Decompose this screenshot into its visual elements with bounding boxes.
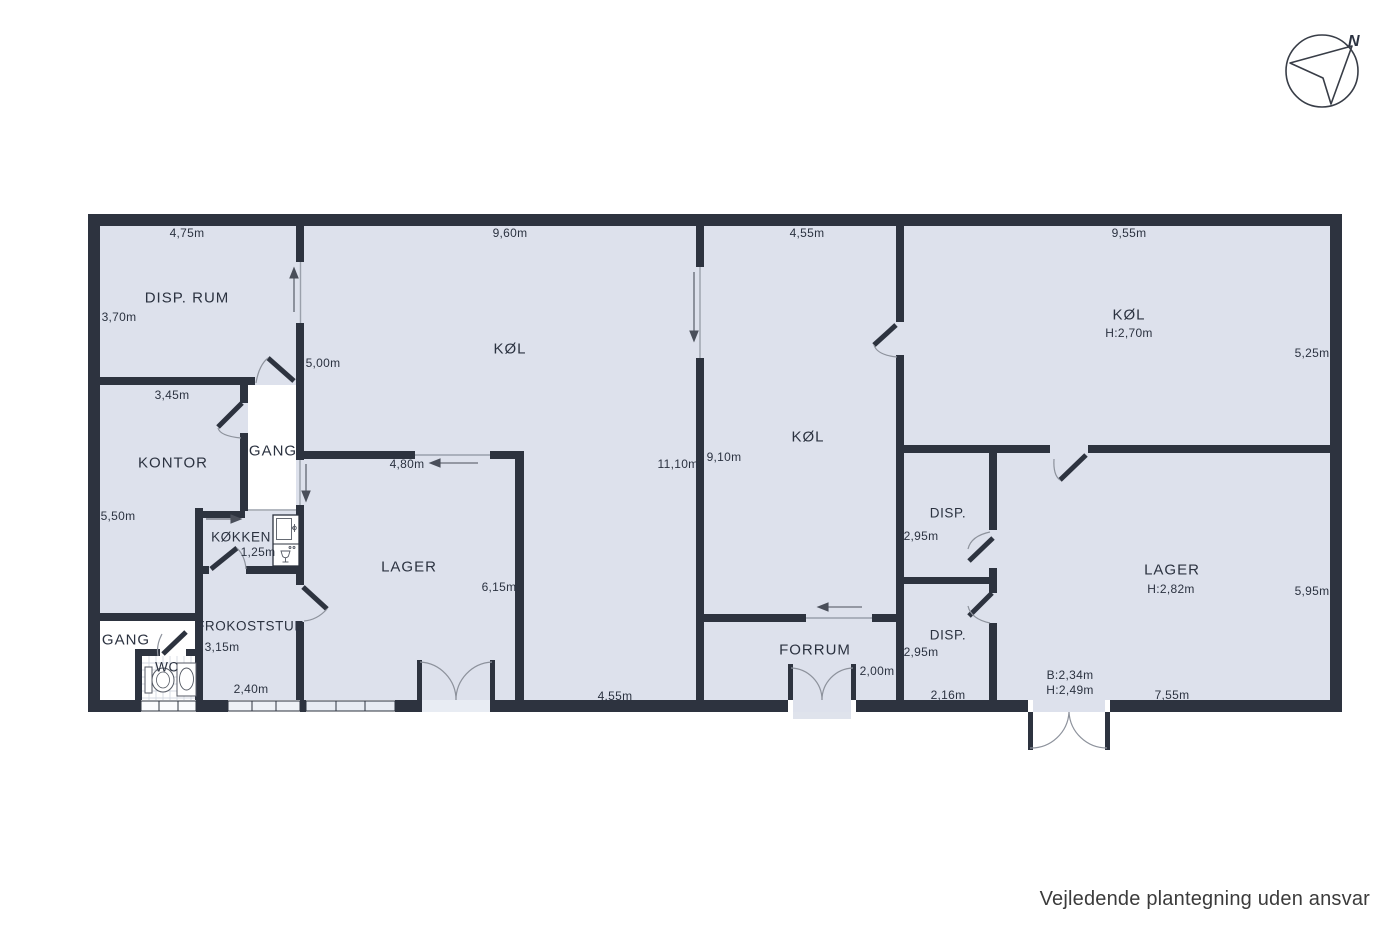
gang-top-floor [248, 385, 296, 511]
lager-right-door-opening [1033, 700, 1105, 712]
kitchen-fixtures [273, 515, 299, 566]
compass: N [1286, 33, 1360, 107]
lager-left-door-opening [422, 700, 490, 712]
toilet-icon [145, 667, 174, 693]
window-frokoststue [228, 701, 300, 711]
disclaimer-text: Vejledende plantegning uden ansvar [1040, 888, 1370, 911]
window-wc [141, 701, 196, 711]
forrum-threshold [793, 712, 851, 719]
wc-sink-icon [177, 663, 196, 696]
floor-plan-page: N DISP. RUM KONTOR GANG KØKKEN FROKOSTST… [0, 0, 1400, 933]
floor-areas [100, 226, 1330, 700]
window-lager [306, 701, 395, 711]
forrum-door-opening [793, 700, 851, 712]
north-arrow-icon [1290, 46, 1352, 104]
compass-north-label: N [1348, 33, 1360, 50]
floor-plan-drawing: N [0, 0, 1400, 933]
windows [141, 701, 395, 711]
